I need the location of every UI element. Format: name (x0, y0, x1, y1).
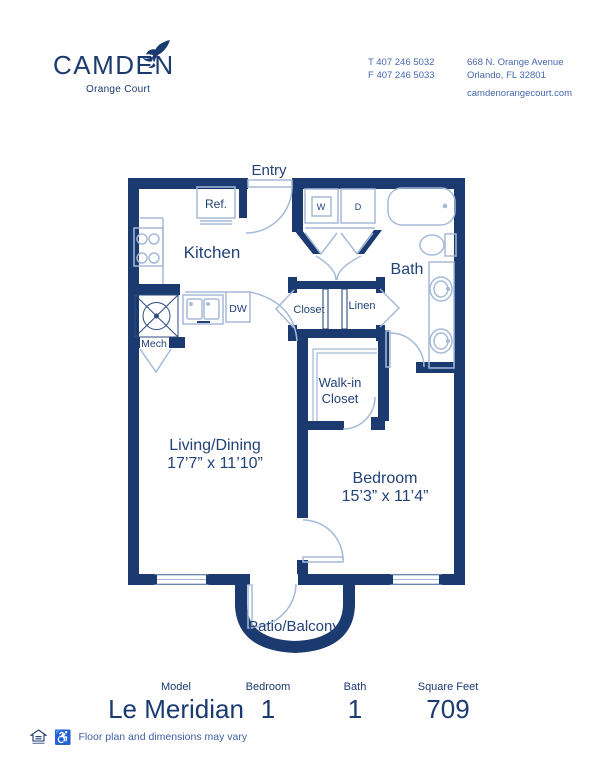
accessibility-icon: ♿ (54, 730, 71, 744)
mech-unit (135, 295, 178, 337)
label-ref: Ref. (205, 197, 227, 211)
label-linen: Linen (349, 300, 376, 312)
phone-line: T 407 246 5032 (368, 56, 435, 69)
hummingbird-icon (137, 40, 171, 70)
address-line-2: Orlando, FL 32801 (467, 69, 563, 82)
closet-partition (323, 289, 347, 329)
summary-model-value: Le Meridian (108, 694, 244, 725)
walls (128, 178, 465, 585)
closet-bifold-door (276, 290, 294, 328)
bath-door-swing (390, 333, 424, 367)
label-bedroom: Bedroom (353, 470, 418, 487)
label-dryer: D (355, 202, 362, 212)
mech-door (140, 349, 171, 372)
summary-bath-value: 1 (344, 694, 367, 725)
label-mech: Mech (141, 338, 167, 350)
logo-subtitle: Orange Court (86, 84, 193, 95)
logo: CAMDEN Orange Court (53, 50, 193, 95)
label-bath: Bath (391, 261, 424, 278)
fax-line: F 407 246 5033 (368, 69, 435, 82)
linen-bifold-door (380, 289, 399, 327)
label-kitchen: Kitchen (184, 243, 241, 262)
summary-bedroom: Bedroom 1 (246, 681, 291, 725)
summary-bath: Bath 1 (344, 681, 367, 725)
website-text: camdenorangecourt.com (467, 87, 572, 100)
summary-bedroom-value: 1 (246, 694, 291, 725)
entry-door-leaf (248, 180, 292, 187)
label-entry: Entry (251, 162, 287, 179)
contact-website: camdenorangecourt.com (467, 87, 572, 100)
label-washer: W (317, 202, 326, 212)
summary-sqft-value: 709 (418, 694, 479, 725)
label-dishwasher: DW (229, 303, 247, 315)
bedroom-door-leaf (303, 557, 343, 562)
floor-plan: Entry Ref. Kitchen W D Bath Mech DW Clos… (0, 150, 600, 680)
footnote-text: Floor plan and dimensions may vary (78, 731, 247, 743)
footnote: ♿ Floor plan and dimensions may vary (30, 729, 247, 745)
label-closet: Closet (293, 304, 324, 316)
contact-phones: T 407 246 5032 F 407 246 5033 (368, 56, 435, 82)
entry-door-swing (246, 187, 292, 233)
logo-wordmark: CAMDEN (53, 50, 193, 81)
label-walkin-1: Walk-in (319, 375, 362, 390)
summary-model-label: Model (108, 681, 244, 693)
label-patio: Patio/Balcony (248, 618, 340, 635)
summary-bath-label: Bath (344, 681, 367, 693)
toilet (420, 235, 444, 255)
contact-address: 668 N. Orange Avenue Orlando, FL 32801 (467, 56, 563, 82)
summary-sqft: Square Feet 709 (418, 681, 479, 725)
vanity (429, 262, 454, 368)
equal-housing-icon (30, 729, 47, 745)
label-walkin-2: Closet (322, 391, 359, 406)
summary-sqft-label: Square Feet (418, 681, 479, 693)
address-line-1: 668 N. Orange Avenue (467, 56, 563, 69)
label-living-dims: 17’7” x 11’10” (167, 455, 263, 472)
bedroom-door-swing (303, 520, 343, 560)
label-living: Living/Dining (169, 437, 261, 454)
summary-model: Model Le Meridian (108, 681, 244, 725)
summary-bedroom-label: Bedroom (246, 681, 291, 693)
label-bedroom-dims: 15’3” x 11’4” (342, 488, 429, 505)
